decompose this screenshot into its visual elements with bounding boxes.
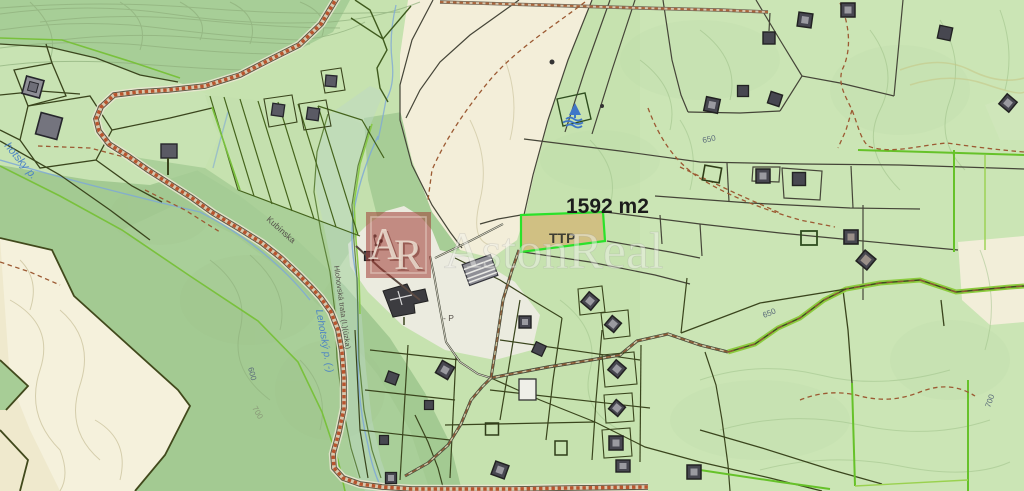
svg-text:1592 m2: 1592 m2 xyxy=(566,195,649,218)
svg-text:R: R xyxy=(394,232,423,279)
svg-text:- P: - P xyxy=(443,313,454,323)
svg-text:AstonReal: AstonReal xyxy=(444,223,664,280)
